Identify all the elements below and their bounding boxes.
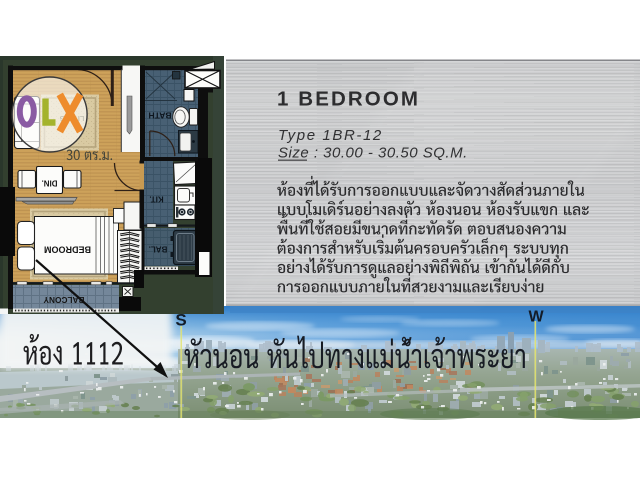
- svg-text:BEDROOM: BEDROOM: [44, 245, 91, 255]
- svg-text:W: W: [528, 309, 544, 326]
- svg-text:BATH: BATH: [149, 111, 172, 121]
- svg-text:DIN.: DIN.: [42, 179, 58, 188]
- svg-text:1 BEDROOM: 1 BEDROOM: [277, 88, 420, 111]
- svg-text:BAL.: BAL.: [149, 245, 168, 254]
- svg-text:Size : 30.00 - 30.50 SQ.M.: Size : 30.00 - 30.50 SQ.M.: [278, 145, 468, 162]
- svg-text:Type 1BR-12: Type 1BR-12: [278, 127, 383, 144]
- svg-text:KIT.: KIT.: [149, 195, 163, 204]
